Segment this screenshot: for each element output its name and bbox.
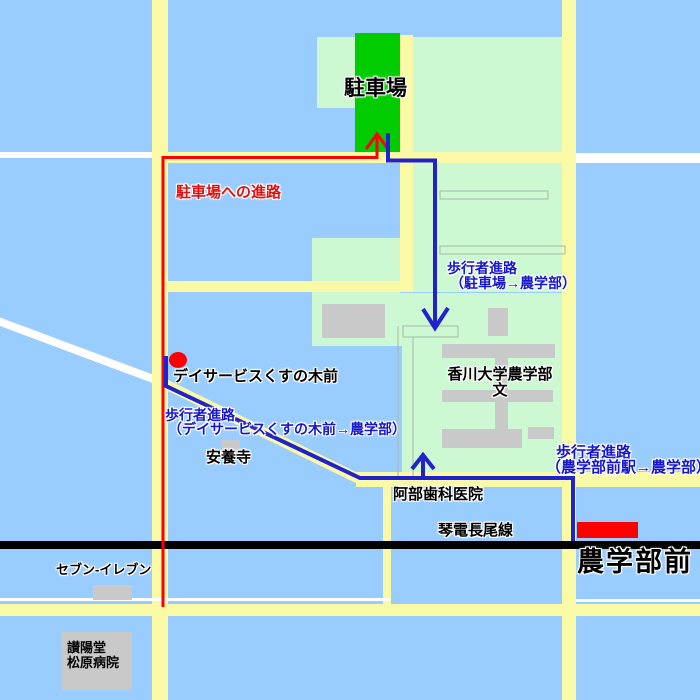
campus-building-lower-stub (495, 402, 508, 430)
hospital-label-line2: 松原病院 (67, 656, 119, 670)
map-canvas (0, 0, 700, 700)
ped-route-station-label-line2: （農学部前駅→農学部） (546, 460, 700, 476)
ped-route-parking-label-line2: （駐車場→農学部） (450, 276, 576, 291)
access-map: 駐車場 駐車場への進路 歩行者進路 （駐車場→農学部） デイサービスくすの木前 … (0, 0, 700, 700)
campus-building-lower-bar (442, 429, 522, 448)
ped-route-dayservice-label-line2: （デイサービスくすの木前→農学部） (168, 422, 406, 437)
road-diagonal-west (0, 321, 156, 380)
ped-route-parking-label-line1: 歩行者進路 (447, 261, 517, 276)
station-marker (577, 522, 638, 538)
day-service-stop-label: デイサービスくすの木前 (173, 369, 338, 385)
seven-eleven-label: セブン-イレブン (56, 563, 151, 577)
abe-dental-label: 阿部歯科医院 (393, 487, 483, 503)
university-label: 香川大学農学部 文 (442, 367, 558, 399)
railway-line-label: 琴電長尾線 (438, 523, 513, 539)
road-white-northeast (576, 153, 700, 163)
water-inset (312, 346, 402, 472)
road-white-thin-right (576, 599, 700, 602)
university-label-line1: 香川大学農学部 (442, 367, 558, 383)
campus-building-top-stub (488, 308, 508, 336)
station-name-label: 農学部前 (577, 548, 693, 576)
seven-eleven-building (93, 585, 132, 600)
anyoji-temple-label: 安養寺 (206, 450, 251, 466)
road-horizontal-bottom (0, 604, 700, 616)
road-white-thin-left (0, 598, 390, 601)
campus-building-upper-bar (442, 344, 555, 358)
parking-route-label: 駐車場への進路 (176, 185, 281, 201)
campus-building-lower-right (528, 427, 554, 439)
bus-stop-dot (169, 352, 187, 368)
hospital-label-line1: 讃陽堂 (67, 641, 106, 655)
road-vertical-west (152, 0, 168, 700)
road-vertical-east (562, 0, 576, 700)
road-vertical-campus (400, 35, 413, 292)
road-white-northwest (0, 152, 152, 158)
green-block-northeast (400, 37, 562, 152)
university-label-line2: 文 (442, 383, 558, 399)
campus-building-northwest (322, 304, 385, 338)
parking-label: 駐車場 (344, 78, 407, 100)
road-horizontal-mid (152, 281, 413, 292)
